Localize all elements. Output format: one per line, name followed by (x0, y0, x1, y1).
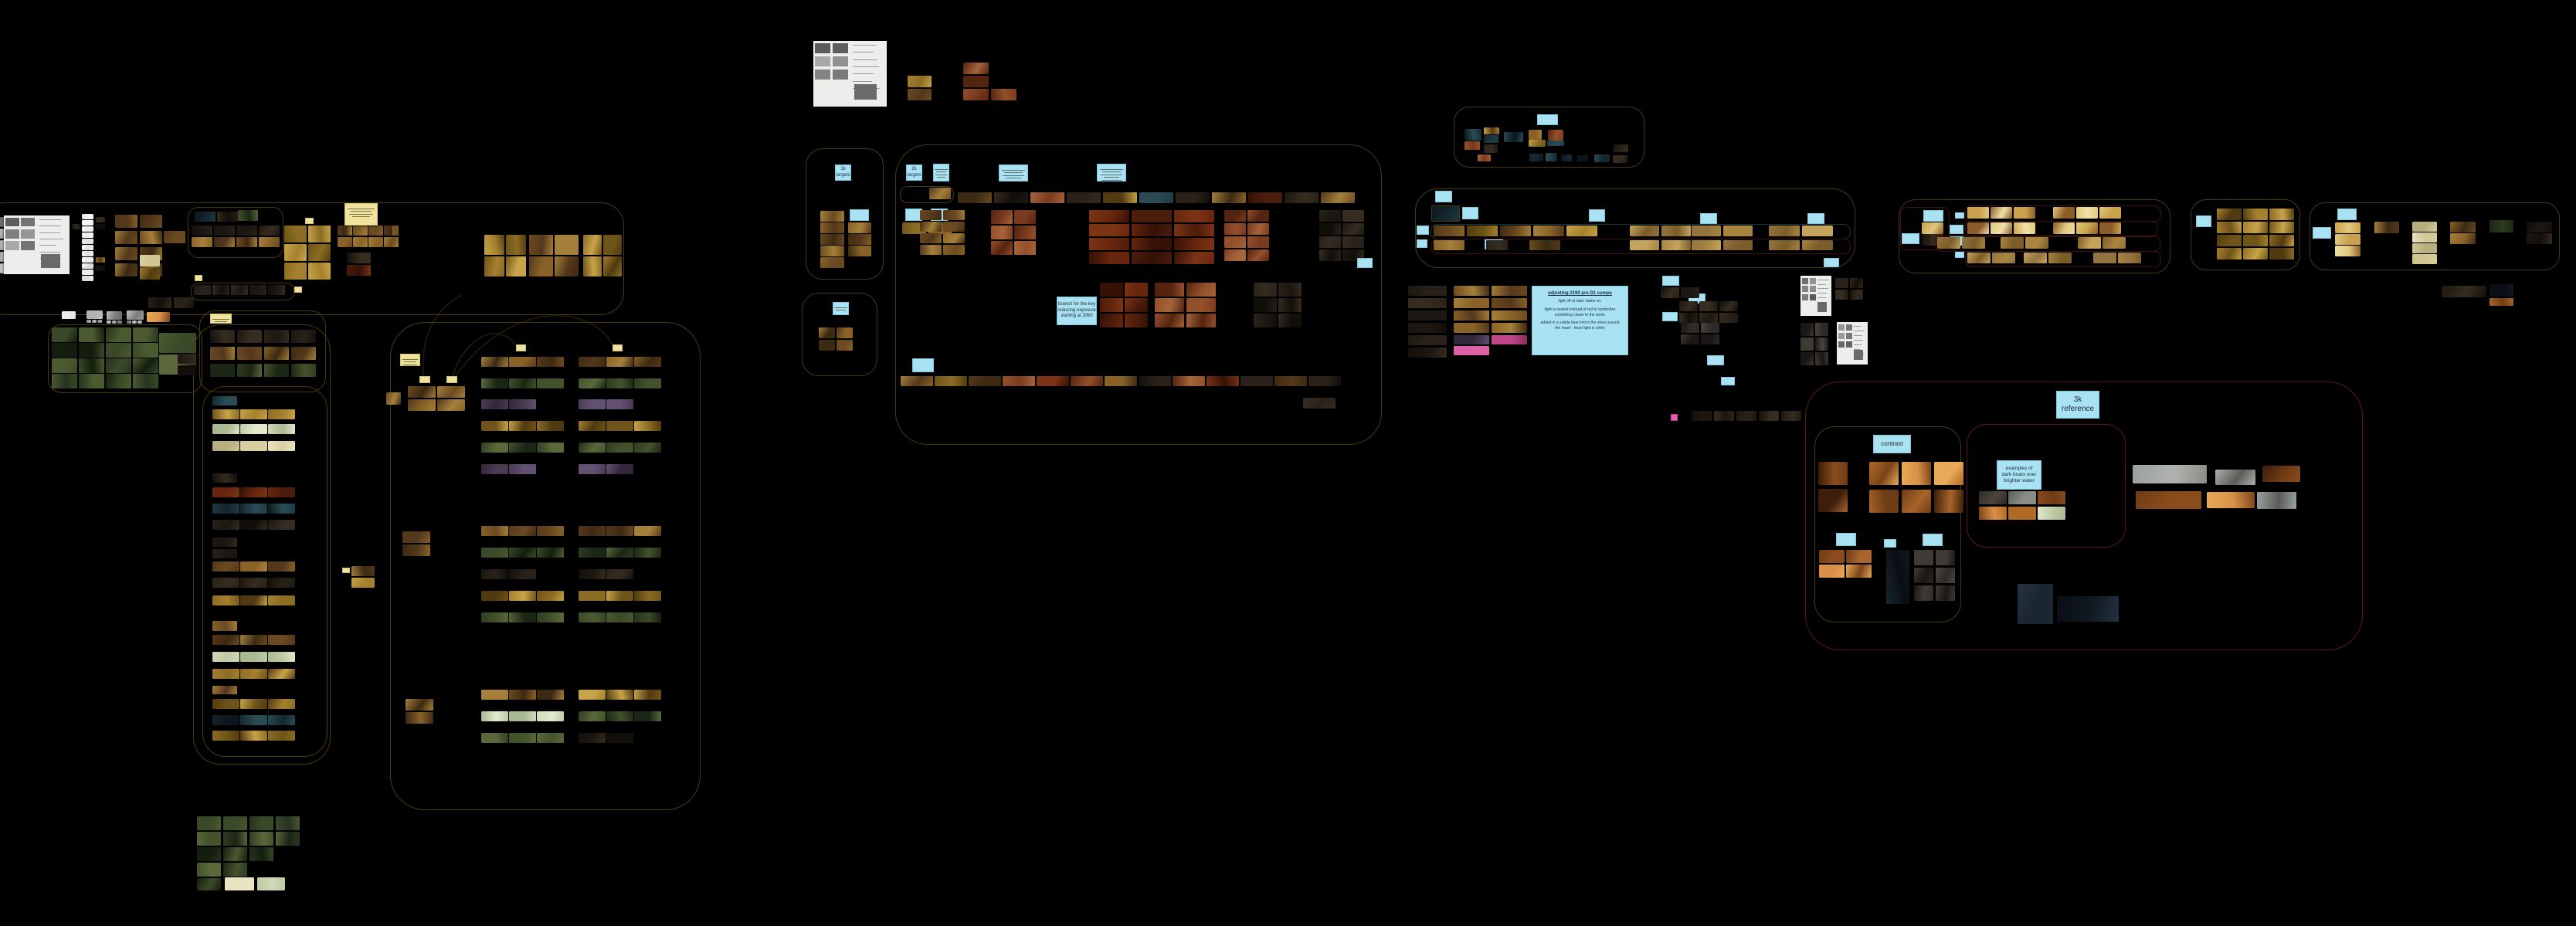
thumbnail[interactable] (240, 699, 267, 709)
thumbnail[interactable] (1224, 236, 1246, 248)
thumbnail[interactable] (963, 89, 989, 100)
thumbnail[interactable] (1661, 287, 1679, 298)
sticky-note[interactable] (1836, 533, 1856, 546)
thumbnail[interactable] (2048, 253, 2072, 263)
thumbnail[interactable] (1992, 253, 2015, 263)
thumbnail[interactable] (484, 235, 504, 255)
thumbnail[interactable] (481, 612, 508, 622)
thumbnail[interactable] (133, 358, 158, 373)
thumbnail[interactable] (2038, 507, 2065, 520)
thumbnail[interactable] (1030, 192, 1064, 203)
thumbnail[interactable] (82, 239, 93, 244)
thumbnail[interactable] (82, 226, 93, 232)
thumbnail[interactable] (1132, 252, 1172, 264)
thumbnail[interactable] (1819, 565, 1845, 578)
thumbnail[interactable] (1248, 192, 1282, 203)
thumbnail[interactable] (537, 421, 564, 431)
thumbnail[interactable] (112, 321, 117, 324)
thumbnail[interactable] (115, 215, 137, 228)
thumbnail[interactable] (1247, 223, 1269, 235)
thumbnail[interactable] (212, 699, 239, 709)
thumbnail[interactable] (2078, 237, 2101, 249)
sticky-note[interactable] (342, 568, 350, 573)
sticky-note[interactable] (210, 314, 232, 324)
thumbnail[interactable] (1176, 192, 1210, 203)
thumbnail[interactable] (210, 364, 235, 377)
thumbnail[interactable] (1278, 314, 1302, 327)
thumbnail[interactable] (2014, 222, 2035, 234)
thumbnail[interactable] (1174, 210, 1214, 222)
thumbnail[interactable] (1869, 462, 1899, 485)
thumbnail[interactable] (210, 347, 235, 360)
thumbnail[interactable] (1089, 224, 1129, 236)
sticky-note[interactable] (1955, 251, 1964, 258)
thumbnail[interactable] (2412, 232, 2437, 243)
thumbnail[interactable] (140, 255, 160, 266)
thumbnail[interactable] (579, 378, 606, 388)
thumbnail[interactable] (223, 816, 247, 830)
thumbnail[interactable] (408, 386, 436, 398)
thumbnail[interactable] (1679, 301, 1698, 311)
thumbnail[interactable] (509, 548, 536, 558)
thumbnail[interactable] (106, 358, 131, 373)
thumbnail[interactable] (62, 311, 76, 319)
thumbnail[interactable] (1484, 135, 1498, 143)
sticky-note[interactable] (1700, 213, 1717, 224)
thumbnail[interactable] (2335, 222, 2360, 233)
thumbnail[interactable] (192, 237, 212, 247)
thumbnail[interactable] (963, 63, 989, 74)
sticky-note[interactable] (1955, 212, 1964, 219)
sticky-note[interactable] (912, 358, 934, 372)
thumbnail[interactable] (537, 612, 564, 622)
sticky-note[interactable] (1417, 226, 1429, 235)
thumbnail[interactable] (1818, 462, 1848, 485)
thumbnail[interactable] (237, 330, 262, 343)
thumbnail[interactable] (1815, 337, 1828, 351)
thumbnail[interactable] (212, 731, 239, 741)
thumbnail[interactable] (240, 715, 267, 725)
thumbnail[interactable] (1464, 129, 1481, 141)
thumbnail[interactable] (1434, 240, 1464, 250)
thumbnail[interactable] (579, 399, 606, 409)
thumbnail[interactable] (1846, 565, 1872, 578)
thumbnail[interactable] (481, 526, 508, 536)
thumbnail[interactable] (2099, 222, 2121, 234)
thumbnail[interactable] (537, 526, 564, 536)
thumbnail[interactable] (1037, 376, 1069, 386)
thumbnail[interactable] (1254, 298, 1277, 312)
thumbnail[interactable] (79, 327, 104, 342)
thumbnail[interactable] (1319, 249, 1341, 261)
thumbnail[interactable] (963, 76, 989, 87)
thumbnail[interactable] (351, 566, 375, 576)
thumbnail[interactable] (52, 374, 77, 388)
thumbnail[interactable] (2269, 222, 2294, 233)
thumbnail[interactable] (402, 544, 430, 556)
sticky-note[interactable] (1097, 164, 1126, 181)
sticky-note[interactable] (419, 376, 430, 383)
sticky-note[interactable] (850, 209, 869, 221)
thumbnail[interactable] (408, 399, 436, 411)
thumbnail[interactable] (1454, 335, 1489, 344)
thumbnail[interactable] (606, 733, 633, 743)
thumbnail[interactable] (1614, 144, 1628, 152)
thumbnail[interactable] (2217, 248, 2242, 259)
thumbnail[interactable] (2093, 253, 2116, 263)
thumbnail[interactable] (284, 226, 307, 243)
thumbnail[interactable] (2489, 220, 2513, 232)
thumbnail[interactable] (848, 234, 871, 245)
thumbnail[interactable] (1014, 226, 1036, 239)
thumbnail[interactable] (1014, 241, 1036, 255)
thumbnail[interactable] (1991, 222, 2012, 234)
thumbnail[interactable] (1408, 335, 1447, 345)
thumbnail[interactable] (212, 652, 239, 662)
sticky-note[interactable] (1662, 312, 1678, 321)
thumbnail[interactable] (908, 76, 932, 87)
thumbnail[interactable] (1464, 141, 1480, 150)
thumbnail[interactable] (291, 330, 316, 343)
thumbnail[interactable] (2243, 222, 2268, 233)
thumbnail[interactable] (1247, 210, 1269, 222)
thumbnail[interactable] (1661, 226, 1691, 236)
thumbnail[interactable] (1308, 376, 1341, 386)
thumbnail[interactable] (79, 358, 104, 373)
thumbnail[interactable] (308, 226, 331, 243)
thumbnail[interactable] (583, 235, 602, 255)
reference-sheet[interactable] (4, 215, 70, 274)
thumbnail[interactable] (106, 327, 131, 342)
thumbnail[interactable] (1155, 298, 1184, 312)
thumbnail[interactable] (82, 257, 93, 263)
thumbnail[interactable] (268, 635, 295, 645)
thumbnail[interactable] (1661, 240, 1691, 250)
thumbnail[interactable] (2489, 284, 2513, 297)
adjusting-note[interactable]: adjusting 2190 pre D1 comps light off at… (1532, 286, 1628, 355)
thumbnail[interactable] (97, 320, 102, 323)
thumbnail[interactable] (606, 548, 633, 558)
thumbnail[interactable] (148, 297, 171, 308)
thumbnail[interactable] (1701, 323, 1719, 333)
thumbnail[interactable] (579, 464, 606, 474)
thumbnail[interactable] (240, 595, 267, 605)
thumbnail[interactable] (606, 569, 633, 579)
thumbnail[interactable] (338, 237, 352, 247)
thumbnail[interactable] (406, 699, 433, 711)
thumbnail[interactable] (1254, 314, 1277, 327)
thumbnail[interactable] (1991, 207, 2012, 219)
thumbnail[interactable] (943, 233, 965, 243)
thumbnail[interactable] (353, 237, 368, 247)
thumbnail[interactable] (1492, 286, 1527, 296)
thumbnail[interactable] (1902, 462, 1931, 485)
thumbnail[interactable] (1408, 286, 1447, 296)
thumbnail[interactable] (481, 711, 508, 721)
thumbnail[interactable] (212, 424, 239, 434)
thumbnail[interactable] (1014, 210, 1036, 224)
thumbnail[interactable] (2025, 237, 2048, 249)
thumbnail[interactable] (1922, 222, 1943, 234)
thumbnail[interactable] (240, 578, 267, 588)
thumbnail[interactable] (82, 276, 93, 281)
thumbnail[interactable] (291, 364, 316, 377)
thumbnail[interactable] (82, 245, 93, 250)
thumbnail[interactable] (1936, 550, 1955, 565)
thumbnail[interactable] (537, 591, 564, 601)
thumbnail[interactable] (52, 343, 77, 358)
thumbnail[interactable] (240, 409, 267, 419)
sticky-note[interactable] (400, 354, 420, 366)
thumbnail[interactable] (308, 263, 331, 280)
thumbnail[interactable] (1342, 210, 1364, 222)
thumbnail[interactable] (1100, 314, 1123, 327)
thumbnail[interactable] (1869, 490, 1899, 513)
thumbnail[interactable] (537, 443, 564, 453)
thumbnail[interactable] (1139, 376, 1171, 386)
thumbnail[interactable] (212, 669, 239, 679)
thumbnail[interactable] (2243, 248, 2268, 259)
thumbnail[interactable] (1132, 210, 1172, 222)
thumbnail[interactable] (197, 816, 221, 830)
thumbnail[interactable] (920, 233, 942, 243)
thumbnail[interactable] (1548, 130, 1563, 141)
thumbnail[interactable] (133, 327, 158, 342)
thumbnail[interactable] (1434, 226, 1464, 236)
thumbnail[interactable] (115, 247, 137, 260)
thumbnail[interactable] (537, 690, 564, 700)
thumbnail[interactable] (1815, 352, 1828, 365)
thumbnail[interactable] (1967, 253, 1991, 263)
thumbnail[interactable] (901, 376, 933, 386)
thumbnail[interactable] (1529, 154, 1543, 161)
thumbnail[interactable] (212, 578, 239, 588)
thumbnail[interactable] (197, 832, 221, 846)
thumbnail[interactable] (87, 310, 103, 319)
thumbnail[interactable] (1937, 237, 1960, 249)
thumbnail[interactable] (1247, 236, 1269, 248)
thumbnail[interactable] (579, 357, 606, 367)
sticky-note[interactable] (1950, 225, 1963, 234)
sticky-note[interactable] (195, 275, 202, 281)
thumbnail[interactable] (1454, 298, 1489, 308)
thumbnail[interactable] (1454, 286, 1489, 296)
thumbnail[interactable] (481, 690, 508, 700)
thumbnail[interactable] (214, 237, 235, 247)
thumbnail[interactable] (579, 421, 606, 431)
thumbnail[interactable] (159, 333, 196, 353)
thumbnail[interactable] (87, 320, 91, 323)
thumbnail[interactable] (1979, 507, 2007, 520)
thumbnail[interactable] (1681, 334, 1699, 344)
thumbnail[interactable] (1714, 411, 1734, 421)
thumbnail[interactable] (1914, 550, 1933, 565)
thumbnail[interactable] (249, 847, 273, 861)
thumbnail[interactable] (264, 330, 289, 343)
sticky-note[interactable] (1923, 210, 1943, 222)
thumbnail[interactable] (268, 699, 295, 709)
thumbnail[interactable] (1207, 376, 1239, 386)
thumbnail[interactable] (579, 548, 606, 558)
thumbnail[interactable] (991, 89, 1016, 100)
thumbnail[interactable] (634, 548, 661, 558)
thumbnail[interactable] (994, 192, 1028, 203)
thumbnail[interactable] (2335, 246, 2360, 256)
sticky-note[interactable] (1721, 377, 1735, 385)
thumbnail[interactable] (212, 473, 237, 483)
thumbnail[interactable] (1500, 226, 1531, 236)
thumbnail[interactable] (634, 378, 661, 388)
thumbnail[interactable] (1173, 376, 1205, 386)
thumbnail[interactable] (1723, 226, 1753, 236)
thumbnail[interactable] (2243, 209, 2268, 220)
thumbnail[interactable] (406, 712, 433, 724)
thumbnail[interactable] (212, 595, 239, 605)
thumbnail[interactable] (2099, 207, 2121, 219)
thumbnail[interactable] (127, 310, 144, 320)
thumbnail[interactable] (249, 285, 266, 295)
thumbnail[interactable] (249, 832, 273, 846)
thumbnail[interactable] (509, 591, 536, 601)
thumbnail[interactable] (1224, 210, 1246, 222)
reference-sheet[interactable] (1800, 276, 1831, 316)
thumbnail[interactable] (1212, 192, 1246, 203)
thumbnail[interactable] (1681, 323, 1699, 333)
sticky-note[interactable] (1662, 276, 1679, 286)
thumbnail[interactable] (1936, 568, 1955, 583)
thumbnail[interactable] (606, 399, 633, 409)
thumbnail[interactable] (82, 220, 93, 226)
thumbnail[interactable] (634, 612, 661, 622)
thumbnail[interactable] (634, 421, 661, 431)
thumbnail[interactable] (2024, 253, 2047, 263)
thumbnail[interactable] (1125, 283, 1148, 297)
thumbnail[interactable] (1342, 236, 1364, 248)
thumbnail[interactable] (2018, 584, 2053, 624)
thumbnail[interactable] (240, 652, 267, 662)
thumbnail[interactable] (2269, 248, 2294, 259)
thumbnail[interactable] (127, 321, 131, 324)
thumbnail[interactable] (1815, 323, 1828, 336)
sticky-note[interactable] (446, 376, 457, 383)
thumbnail[interactable] (1681, 287, 1699, 298)
sticky-note[interactable] (833, 302, 849, 315)
thumbnail[interactable] (1274, 376, 1307, 386)
thumbnail[interactable] (268, 504, 295, 514)
thumbnail[interactable] (634, 526, 661, 536)
thumbnail[interactable] (1125, 314, 1148, 327)
sticky-note[interactable] (1537, 114, 1558, 125)
thumbnail[interactable] (1701, 334, 1719, 344)
thumbnail[interactable] (920, 245, 942, 255)
thumbnail[interactable] (212, 285, 229, 295)
thumbnail[interactable] (908, 89, 932, 100)
thumbnail[interactable] (481, 443, 508, 453)
thumbnail[interactable] (848, 246, 871, 256)
thumbnail[interactable] (284, 263, 307, 280)
thumbnail[interactable] (237, 347, 262, 360)
thumbnail[interactable] (52, 358, 77, 373)
sticky-note[interactable]: 2k targets (906, 165, 922, 181)
thumbnail[interactable] (115, 231, 137, 244)
thumbnail[interactable] (1247, 249, 1269, 261)
thumbnail[interactable] (481, 399, 508, 409)
thumbnail[interactable] (509, 733, 536, 743)
thumbnail[interactable] (1819, 550, 1845, 563)
reference-sheet[interactable] (813, 41, 887, 107)
thumbnail[interactable] (837, 327, 853, 338)
thumbnail[interactable] (509, 711, 536, 721)
thumbnail[interactable] (1800, 352, 1814, 365)
thumbnail[interactable] (2217, 222, 2242, 233)
thumbnail[interactable] (140, 231, 162, 244)
thumbnail[interactable] (820, 222, 844, 233)
thumbnail[interactable] (481, 378, 508, 388)
thumbnail[interactable] (603, 256, 622, 276)
sticky-note[interactable]: 1k targets (835, 165, 851, 181)
thumbnail[interactable] (2038, 491, 2065, 504)
thumbnail[interactable] (481, 357, 508, 367)
thumbnail[interactable] (579, 591, 606, 601)
thumbnail[interactable] (79, 343, 104, 358)
thumbnail[interactable] (2269, 235, 2294, 246)
thumbnail[interactable] (308, 244, 331, 261)
thumbnail[interactable] (96, 217, 105, 222)
sticky-note[interactable] (1807, 213, 1824, 224)
thumbnail[interactable] (249, 816, 273, 830)
thumbnail[interactable] (1319, 223, 1341, 235)
thumbnail[interactable] (276, 816, 300, 830)
thumbnail[interactable] (52, 327, 77, 342)
thumbnail[interactable] (1492, 335, 1527, 344)
thumbnail[interactable] (268, 595, 295, 605)
thumbnail[interactable] (240, 561, 267, 572)
thumbnail[interactable] (212, 686, 237, 694)
thumbnail[interactable] (1254, 283, 1277, 297)
thumbnail[interactable] (240, 504, 267, 514)
thumbnail[interactable] (1934, 462, 1963, 485)
thumbnail[interactable] (2412, 222, 2437, 232)
thumbnail[interactable] (1800, 337, 1814, 351)
thumbnail[interactable] (1914, 585, 1933, 601)
thumbnail[interactable] (223, 832, 247, 846)
thumbnail[interactable] (1962, 237, 1985, 249)
thumbnail[interactable] (2243, 235, 2268, 246)
thumbnail[interactable] (969, 376, 1001, 386)
thumbnail[interactable] (1577, 155, 1588, 161)
thumbnail[interactable] (197, 878, 221, 890)
thumbnail[interactable] (238, 210, 258, 221)
thumbnail[interactable] (437, 399, 465, 411)
thumbnail[interactable] (1240, 376, 1273, 386)
thumbnail[interactable] (212, 549, 237, 558)
thumbnail[interactable] (1478, 154, 1491, 161)
thumbnail[interactable] (2076, 207, 2098, 219)
thumbnail[interactable] (509, 443, 536, 453)
thumbnail[interactable] (606, 443, 633, 453)
thumbnail[interactable] (1319, 236, 1341, 248)
thumbnail[interactable] (79, 374, 104, 388)
sticky-note[interactable] (344, 203, 378, 226)
thumbnail[interactable] (537, 733, 564, 743)
thumbnail[interactable] (240, 441, 267, 451)
thumbnail[interactable] (929, 188, 951, 199)
thumbnail[interactable] (2133, 465, 2207, 483)
thumbnail[interactable] (236, 237, 257, 247)
thumbnail[interactable] (178, 365, 196, 375)
thumbnail[interactable] (537, 711, 564, 721)
thumbnail[interactable] (2215, 470, 2255, 485)
